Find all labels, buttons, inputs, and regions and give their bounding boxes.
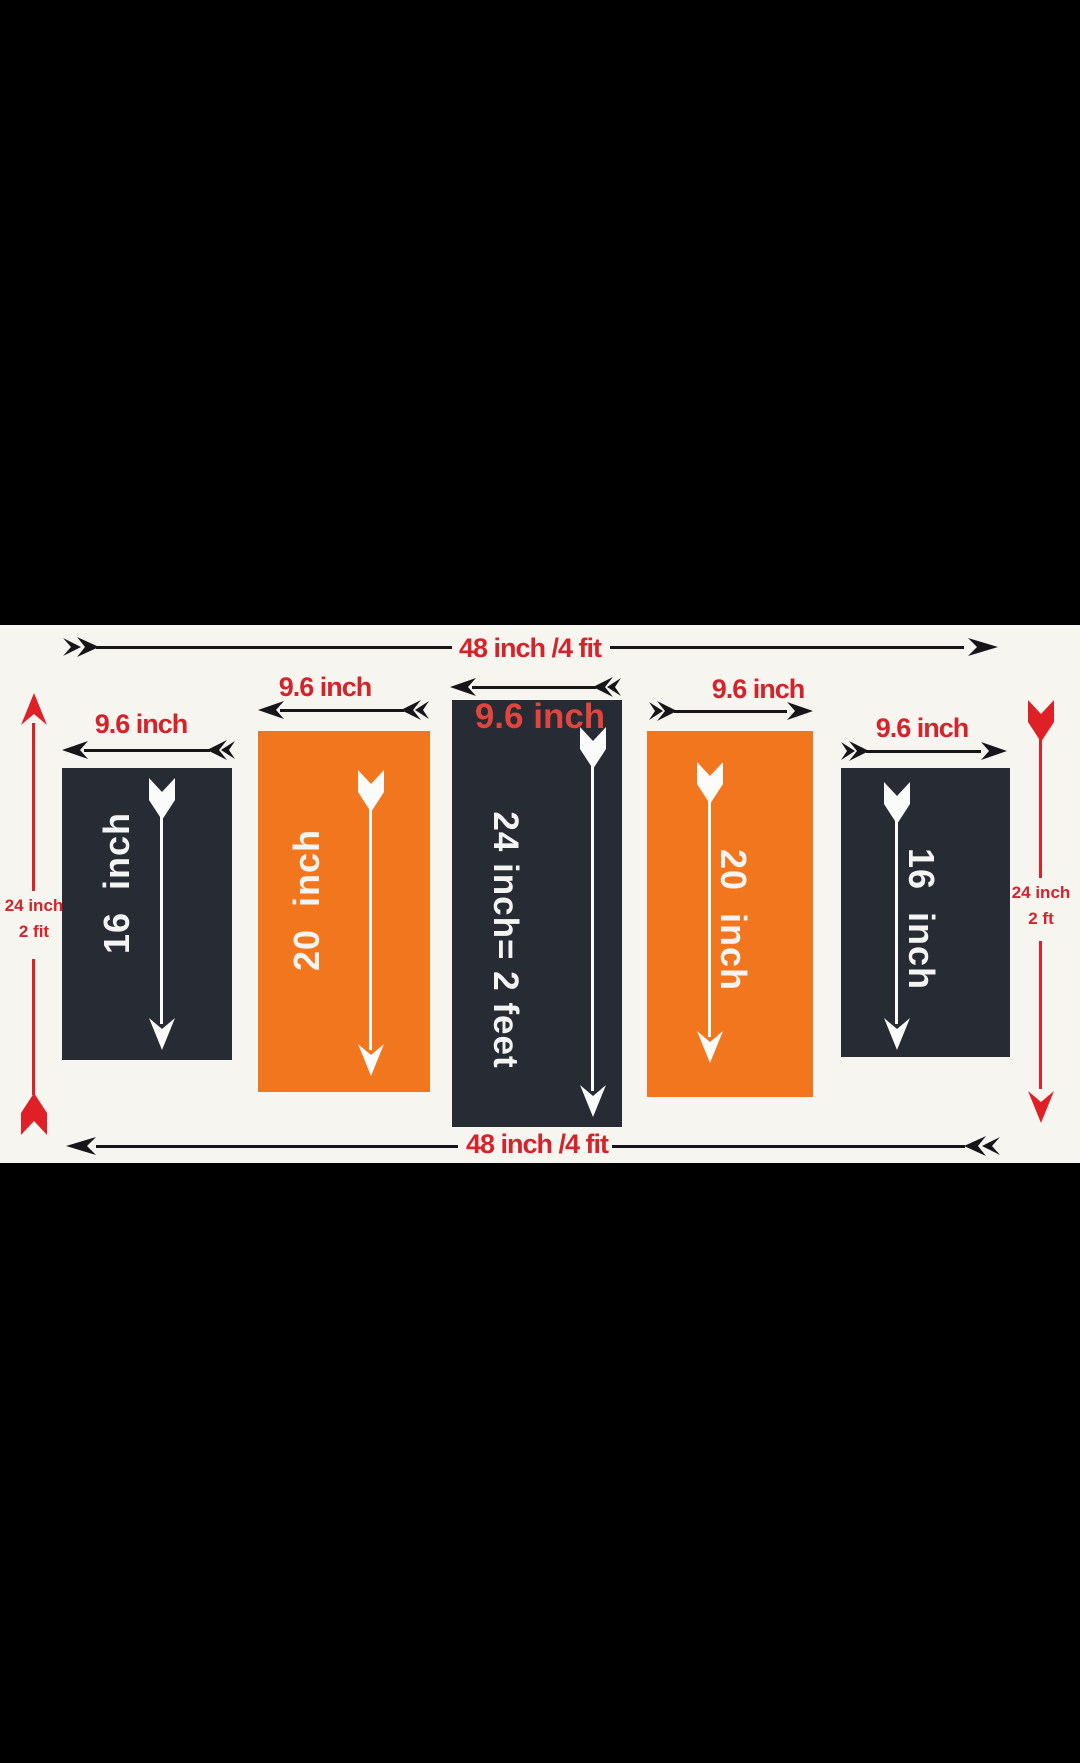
bottom-dimension-label: 48 inch /4 fit [466,1129,608,1160]
panel-1-size-label: 16 inch [96,812,138,954]
panel-2-size-label: 20 inch [286,829,328,971]
panel-1-width-label: 9.6 inch [95,709,188,740]
top-arrow-shaft-left [96,646,452,649]
left-dimension-label: 24 inch 2 fit [5,893,64,945]
top-dimension-label: 48 inch /4 fit [459,633,601,664]
bottom-arrow-fletching-icon [963,1135,1001,1157]
panel-3-width-arrow-shaft [472,686,596,689]
left-arrow-shaft-bottom [32,959,35,1095]
panel-3-width-fletching-icon [592,676,622,698]
panel-5-arrow-fletching-icon [880,782,914,824]
panel-1-arrowhead-down-icon [145,1016,179,1050]
top-arrow-shaft-right [610,646,964,649]
top-arrowhead-right-icon [962,636,998,658]
screenshot-stage: 16 inch 20 inch 24 inch= 2 feet 20 inch … [0,0,1080,1763]
diagram-band: 16 inch 20 inch 24 inch= 2 feet 20 inch … [0,625,1080,1163]
left-arrowhead-up-icon [17,693,51,727]
panel-1-arrow-fletching-icon [145,778,179,820]
panel-1-width-arrow-shaft [84,749,210,752]
right-dimension-label: 24 inch 2 ft [1012,880,1071,932]
left-dimension-line1: 24 inch [5,893,64,919]
panel-4-arrow-shaft [708,800,711,1037]
top-arrow-fletching-icon [62,636,100,658]
panel-5-width-arrow-shaft [866,750,981,753]
panel-1-width-fletching-icon [206,739,236,761]
panel-2-width-fletching-icon [400,699,430,721]
panel-2-width-arrow-shaft [280,709,404,712]
panel-5-arrowhead-down-icon [880,1016,914,1050]
panel-2 [258,731,430,1092]
panel-3-size-label: 24 inch= 2 feet [485,811,525,1068]
right-arrow-shaft-top [1039,738,1042,878]
panel-4-arrow-fletching-icon [693,762,727,804]
panel-4-size-label: 20 inch [712,849,754,991]
panel-4-width-arrow-shaft [674,710,787,713]
panel-2-width-label: 9.6 inch [279,672,372,703]
panel-5-width-label: 9.6 inch [876,713,969,744]
panel-5-arrow-shaft [895,820,898,1024]
right-dimension-line1: 24 inch [1012,880,1071,906]
panel-4-width-arrowhead-right-icon [785,700,813,722]
panel-5-width-arrowhead-right-icon [979,740,1007,762]
panel-2-arrow-fletching-icon [354,770,388,812]
right-arrow-shaft-bottom [1039,941,1042,1089]
panel-5-size-label: 16 inch [900,848,942,990]
panel-3-width-label: 9.6 inch [475,697,605,737]
panel-4-arrowhead-down-icon [693,1029,727,1063]
panel-3-arrowhead-down-icon [576,1083,610,1117]
letterbox-bottom [0,1163,1080,1763]
bottom-arrow-shaft-left [96,1145,458,1148]
left-arrow-fletching-icon [17,1093,51,1135]
panel-2-arrowhead-down-icon [354,1042,388,1076]
left-arrow-shaft-top [32,723,35,891]
bottom-arrow-shaft-right [612,1145,965,1148]
panel-2-arrow-shaft [369,808,372,1050]
letterbox-top [0,0,1080,625]
panel-3-arrow-shaft [591,765,594,1091]
panel-1-arrow-shaft [160,816,163,1024]
right-arrowhead-down-icon [1024,1089,1058,1123]
right-arrow-fletching-icon [1024,700,1058,742]
right-dimension-line2: 2 ft [1012,906,1071,932]
left-dimension-line2: 2 fit [5,919,64,945]
